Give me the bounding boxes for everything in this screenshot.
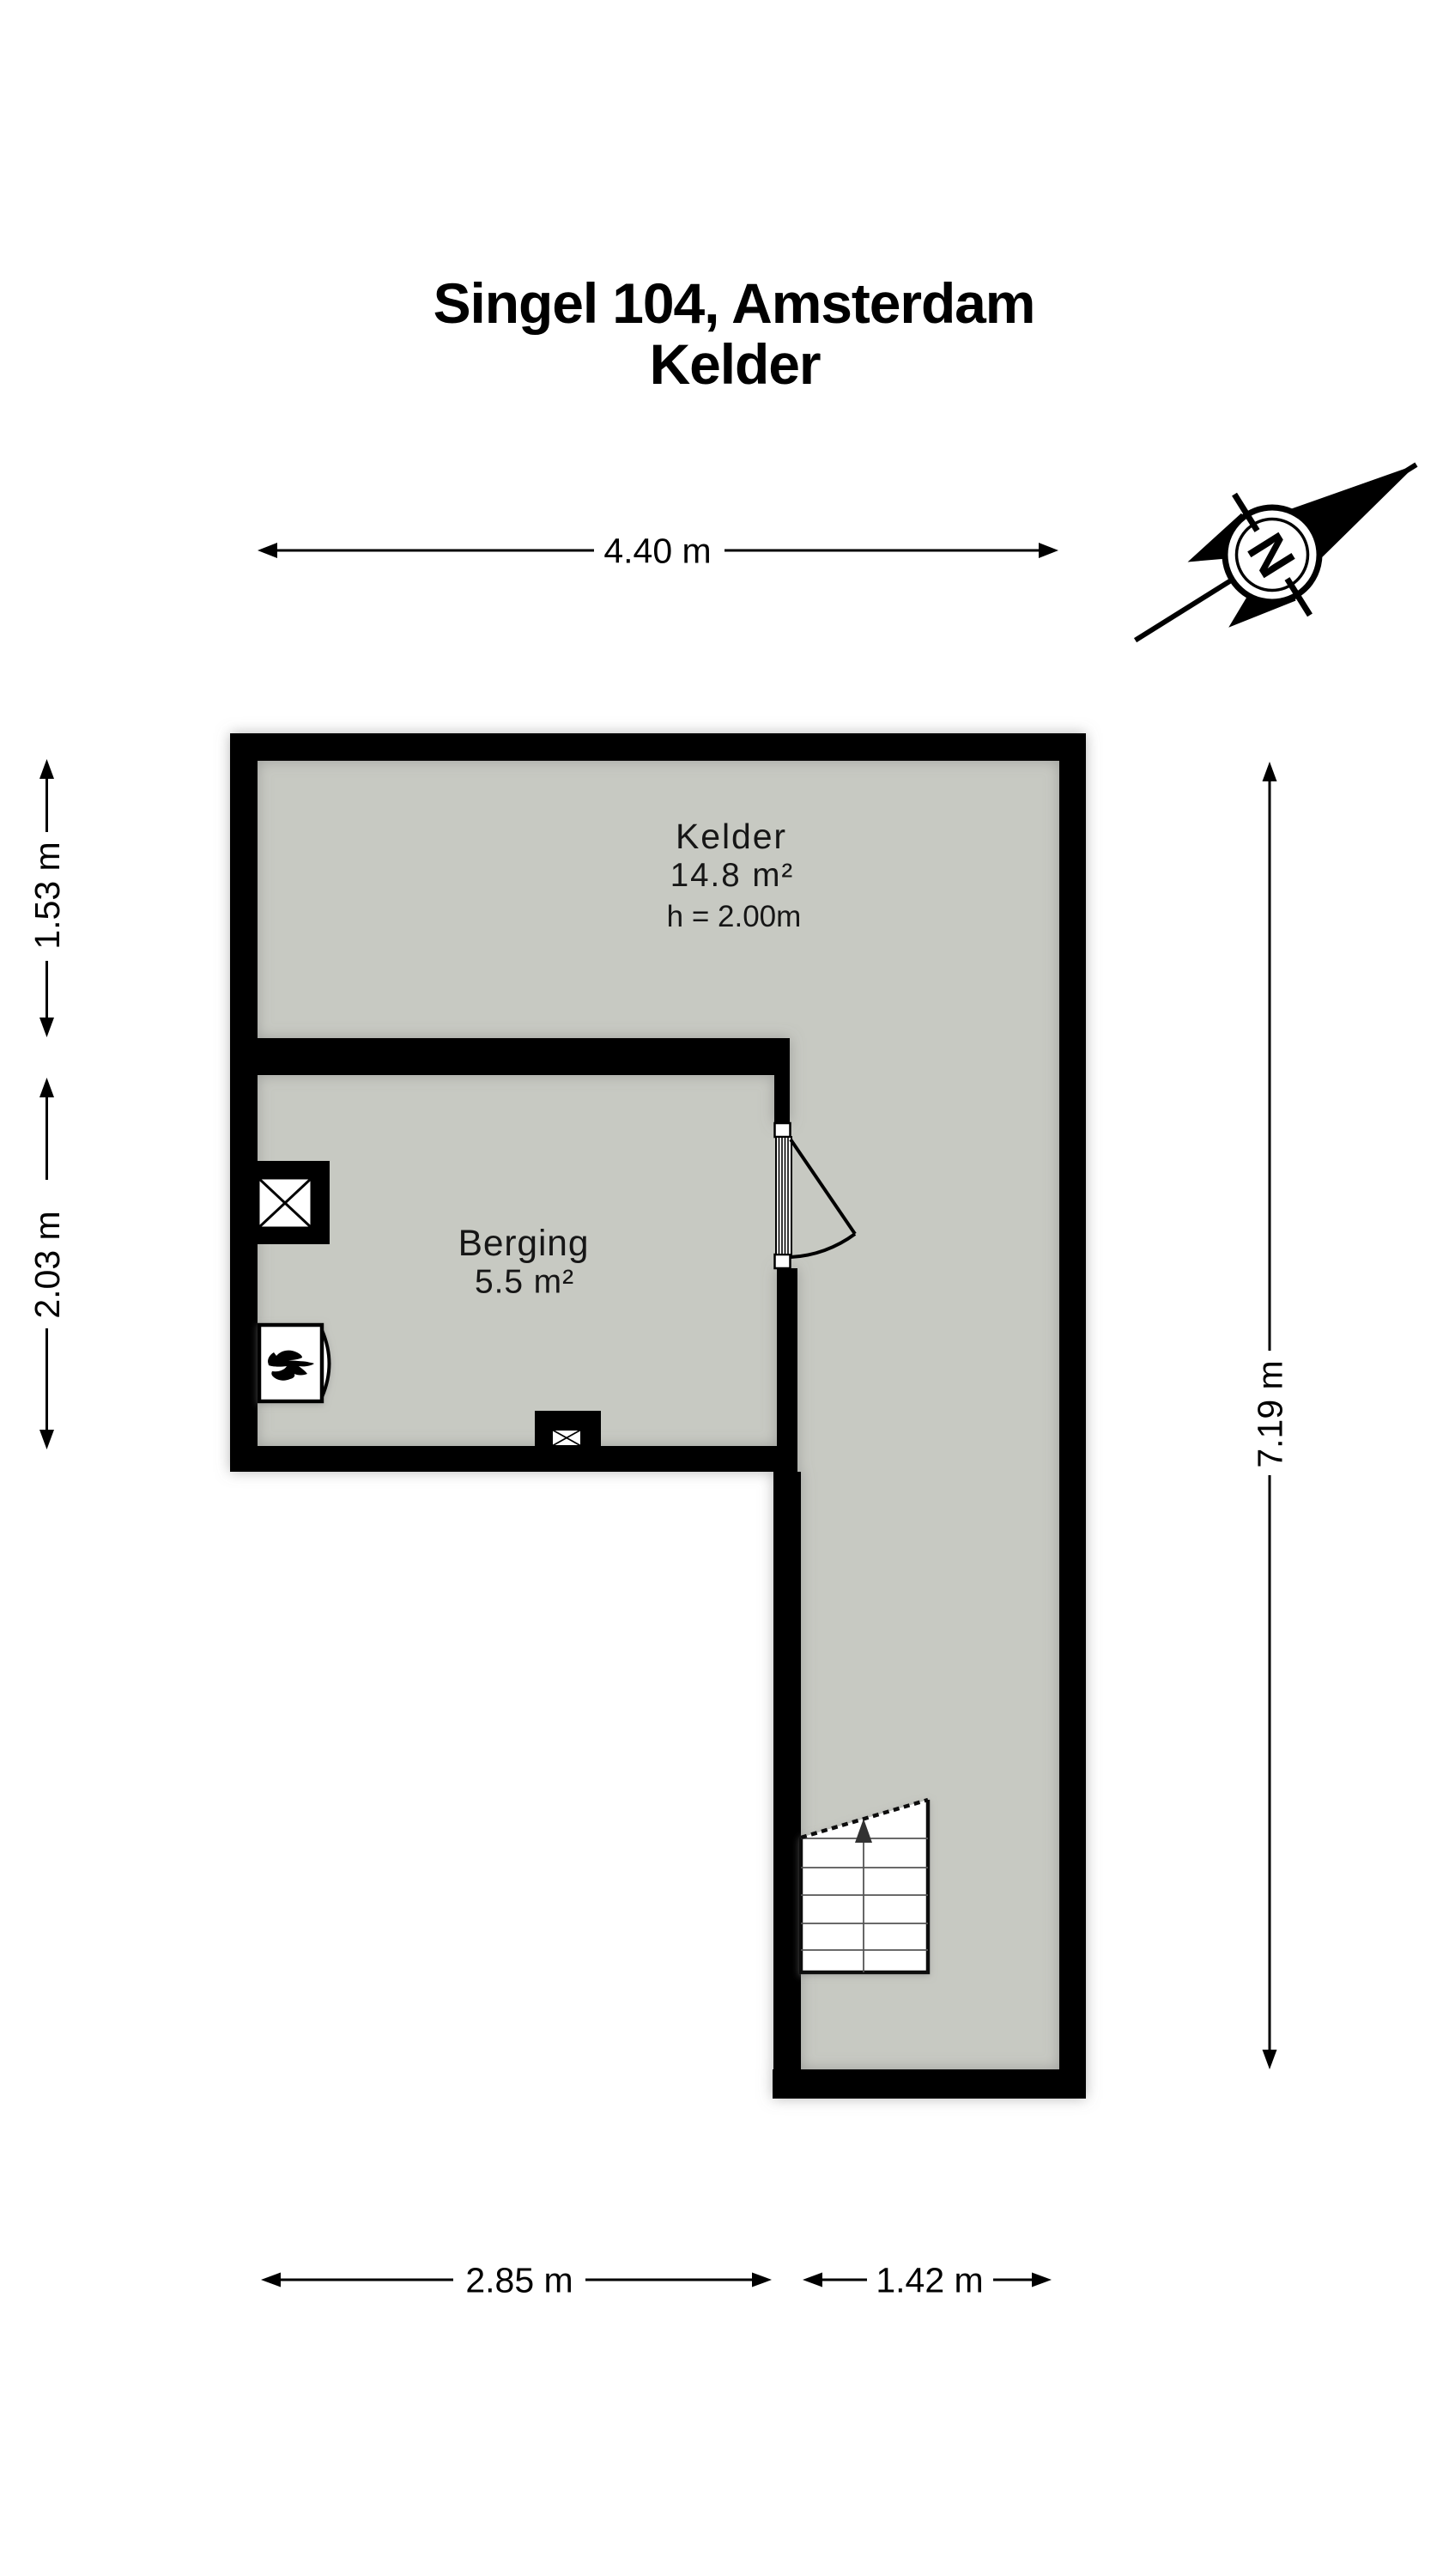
svg-text:1.42 m: 1.42 m	[876, 2261, 983, 2300]
svg-text:7.19 m: 7.19 m	[1251, 1360, 1290, 1467]
svg-text:4.40 m: 4.40 m	[603, 532, 711, 571]
svg-text:1.53 m: 1.53 m	[27, 841, 67, 949]
svg-text:2.85 m: 2.85 m	[465, 2261, 573, 2300]
svg-text:h = 2.00m: h = 2.00m	[667, 900, 802, 933]
svg-text:Kelder: Kelder	[650, 332, 821, 396]
svg-text:14.8 m²: 14.8 m²	[670, 857, 795, 894]
svg-text:2.03 m: 2.03 m	[27, 1211, 67, 1318]
svg-text:Berging: Berging	[458, 1224, 590, 1264]
svg-text:5.5 m²: 5.5 m²	[475, 1264, 574, 1301]
svg-text:Singel 104, Amsterdam: Singel 104, Amsterdam	[433, 271, 1035, 335]
svg-text:Kelder: Kelder	[676, 817, 787, 856]
